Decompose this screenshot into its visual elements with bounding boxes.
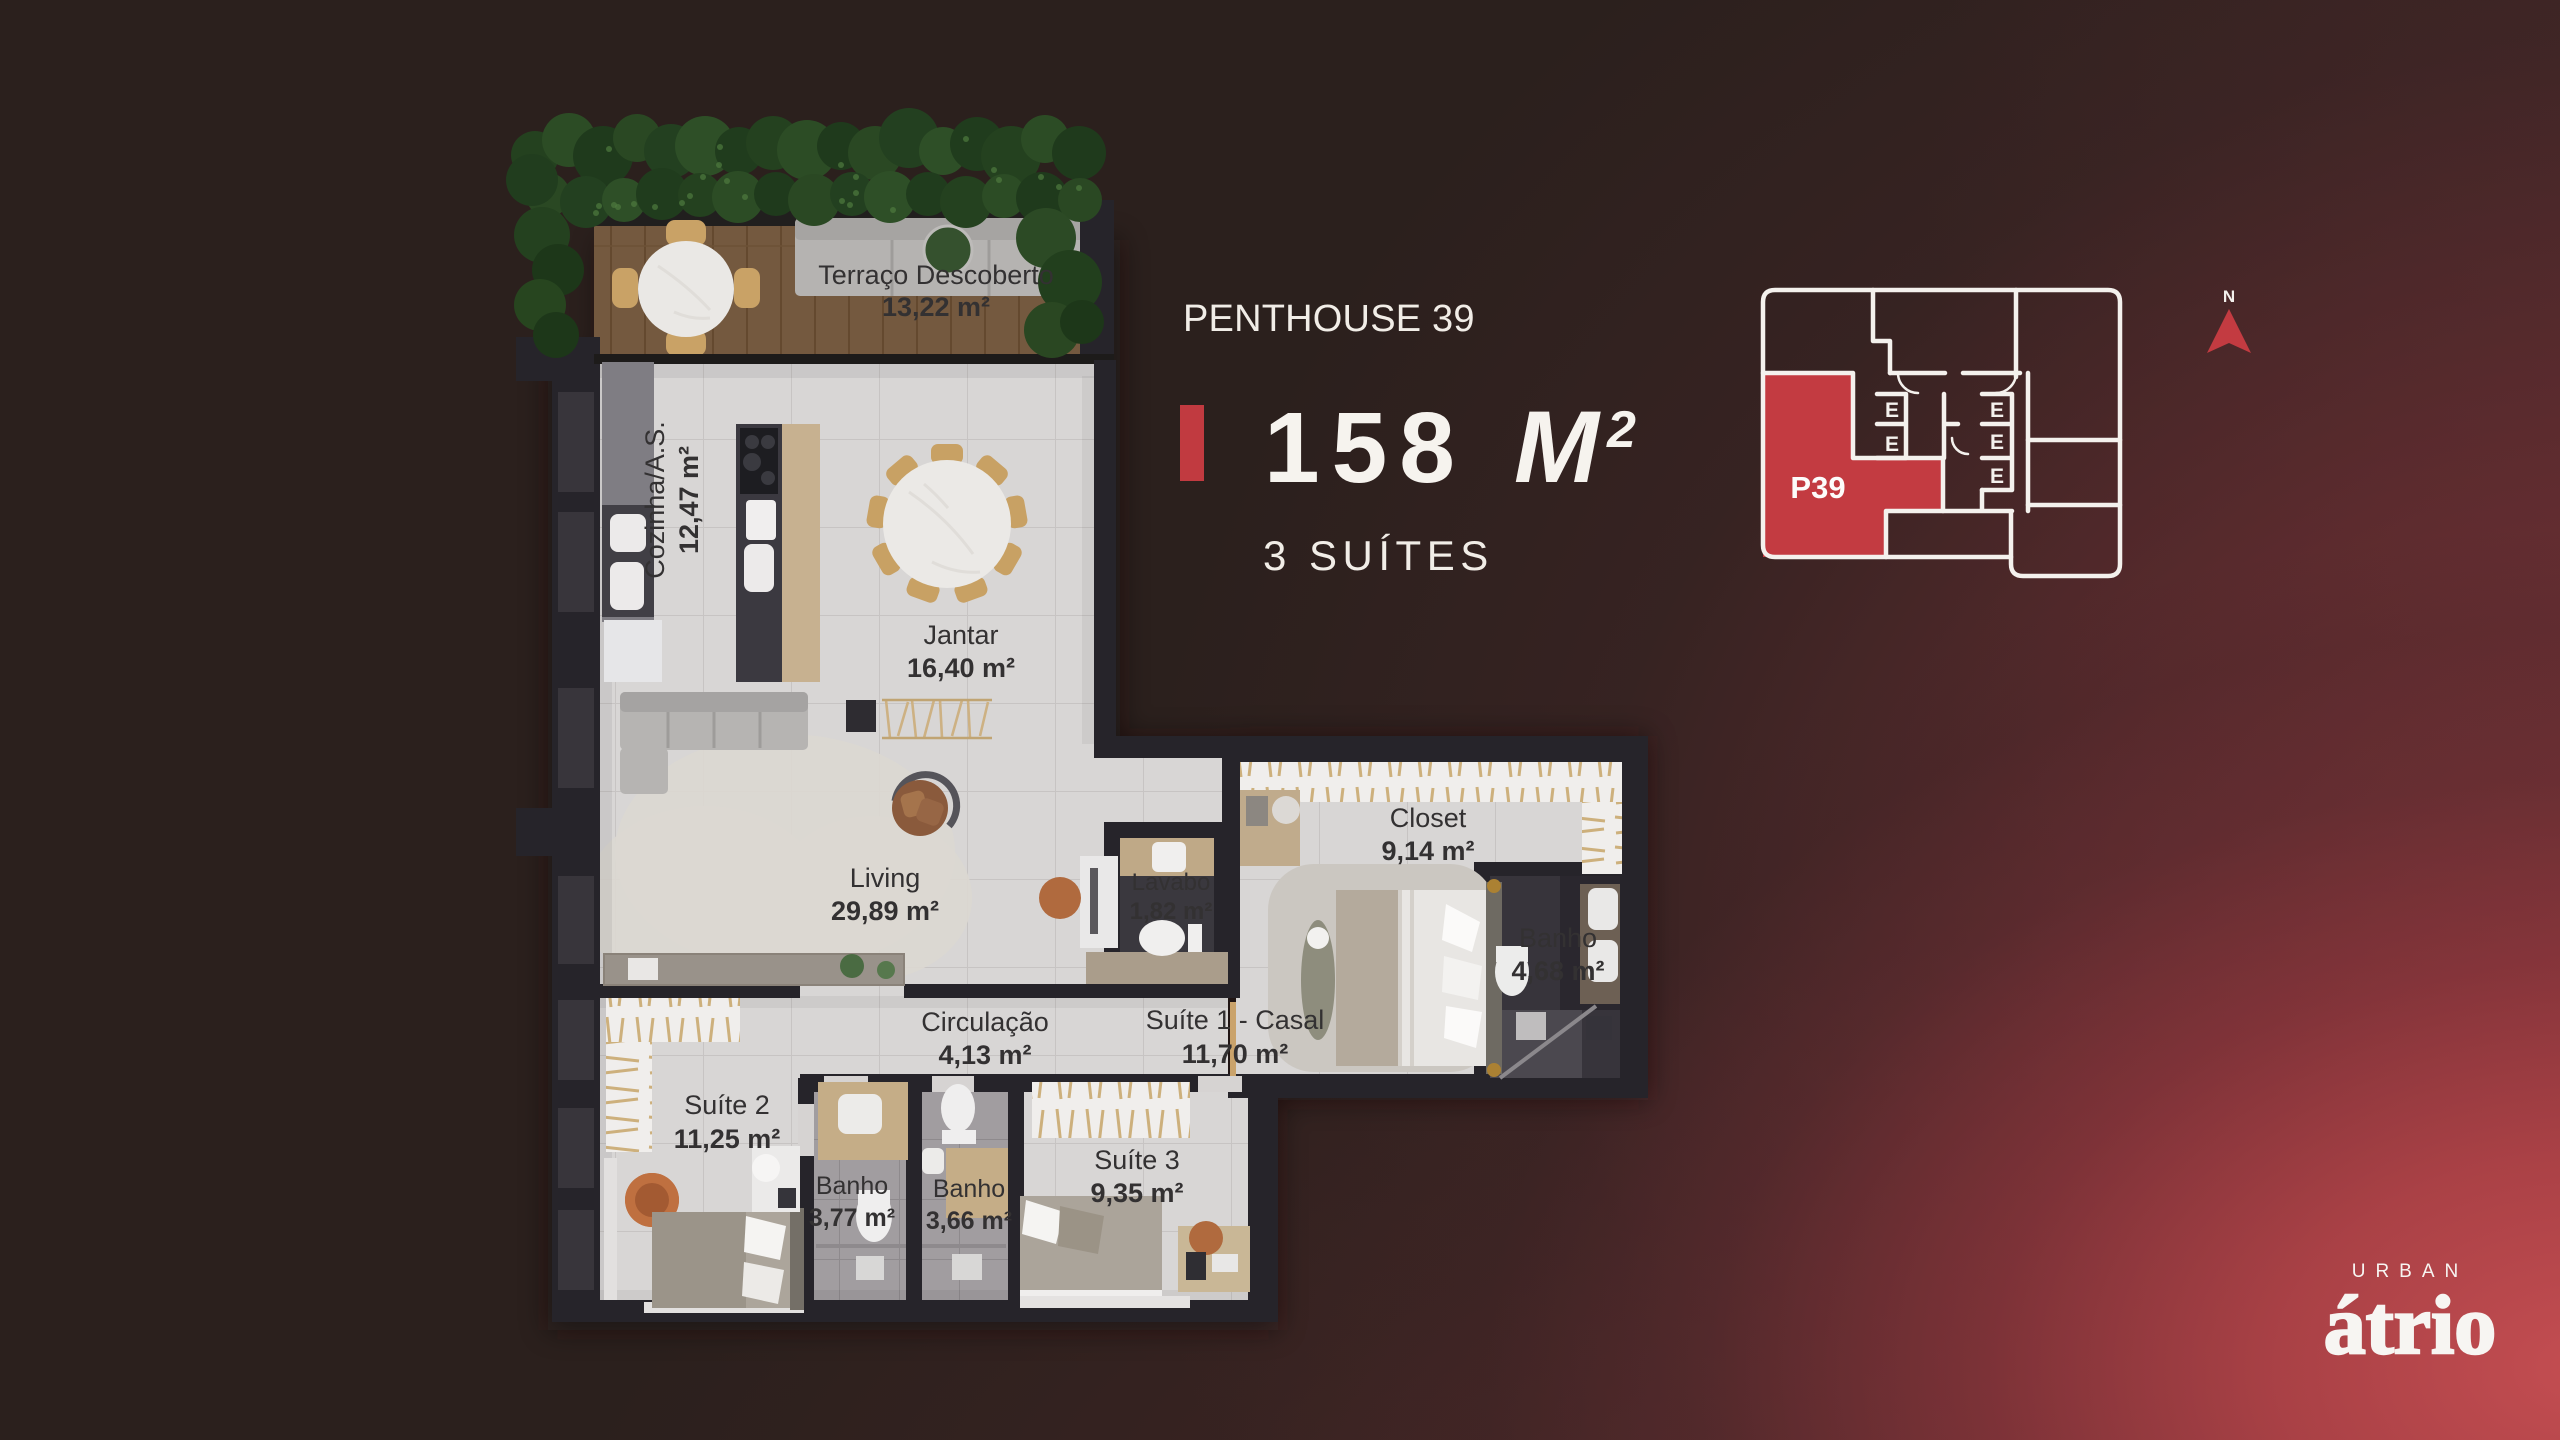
- svg-text:átrio: átrio: [2324, 1279, 2497, 1372]
- svg-text:13,22 m²: 13,22 m²: [882, 292, 990, 322]
- svg-text:29,89 m²: 29,89 m²: [831, 896, 939, 926]
- svg-text:1,82 m²: 1,82 m²: [1130, 898, 1213, 925]
- svg-text:E: E: [1885, 399, 1899, 422]
- svg-text:Lavabo: Lavabo: [1132, 869, 1211, 896]
- svg-text:11,25 m²: 11,25 m²: [674, 1124, 781, 1154]
- svg-text:M: M: [1514, 390, 1601, 504]
- svg-text:9,35 m²: 9,35 m²: [1090, 1178, 1183, 1208]
- svg-text:Suíte 1 - Casal: Suíte 1 - Casal: [1146, 1005, 1325, 1035]
- svg-text:Banho: Banho: [816, 1172, 888, 1200]
- svg-text:E: E: [1885, 433, 1899, 456]
- svg-text:3 SUÍTES: 3 SUÍTES: [1263, 532, 1494, 579]
- svg-text:Cozinha/A.S.: Cozinha/A.S.: [640, 421, 670, 579]
- svg-text:Banho: Banho: [1519, 923, 1597, 953]
- svg-text:4,13 m²: 4,13 m²: [938, 1040, 1031, 1070]
- svg-text:Suíte 3: Suíte 3: [1094, 1145, 1180, 1175]
- svg-text:11,70 m²: 11,70 m²: [1182, 1039, 1289, 1069]
- svg-text:P39: P39: [1790, 470, 1845, 505]
- svg-text:Banho: Banho: [933, 1175, 1005, 1203]
- svg-text:158: 158: [1264, 392, 1467, 504]
- svg-text:4,68 m²: 4,68 m²: [1511, 956, 1604, 986]
- svg-text:PENTHOUSE 39: PENTHOUSE 39: [1183, 298, 1475, 340]
- svg-text:E: E: [1990, 399, 2004, 422]
- svg-text:N: N: [2223, 287, 2235, 306]
- svg-text:Terraço Descoberto: Terraço Descoberto: [818, 260, 1054, 290]
- svg-text:16,40 m²: 16,40 m²: [907, 653, 1015, 683]
- svg-text:3,66 m²: 3,66 m²: [926, 1207, 1012, 1235]
- svg-text:9,14 m²: 9,14 m²: [1381, 836, 1474, 866]
- svg-text:Closet: Closet: [1390, 803, 1467, 833]
- svg-text:Jantar: Jantar: [923, 620, 998, 650]
- svg-text:E: E: [1990, 431, 2004, 454]
- svg-text:3,77 m²: 3,77 m²: [809, 1204, 895, 1232]
- svg-text:Suíte 2: Suíte 2: [684, 1090, 770, 1120]
- svg-text:Circulação: Circulação: [921, 1007, 1049, 1037]
- svg-text:2: 2: [1606, 401, 1636, 459]
- svg-text:E: E: [1990, 465, 2004, 488]
- svg-text:Living: Living: [850, 863, 921, 893]
- svg-text:12,47 m²: 12,47 m²: [674, 446, 704, 554]
